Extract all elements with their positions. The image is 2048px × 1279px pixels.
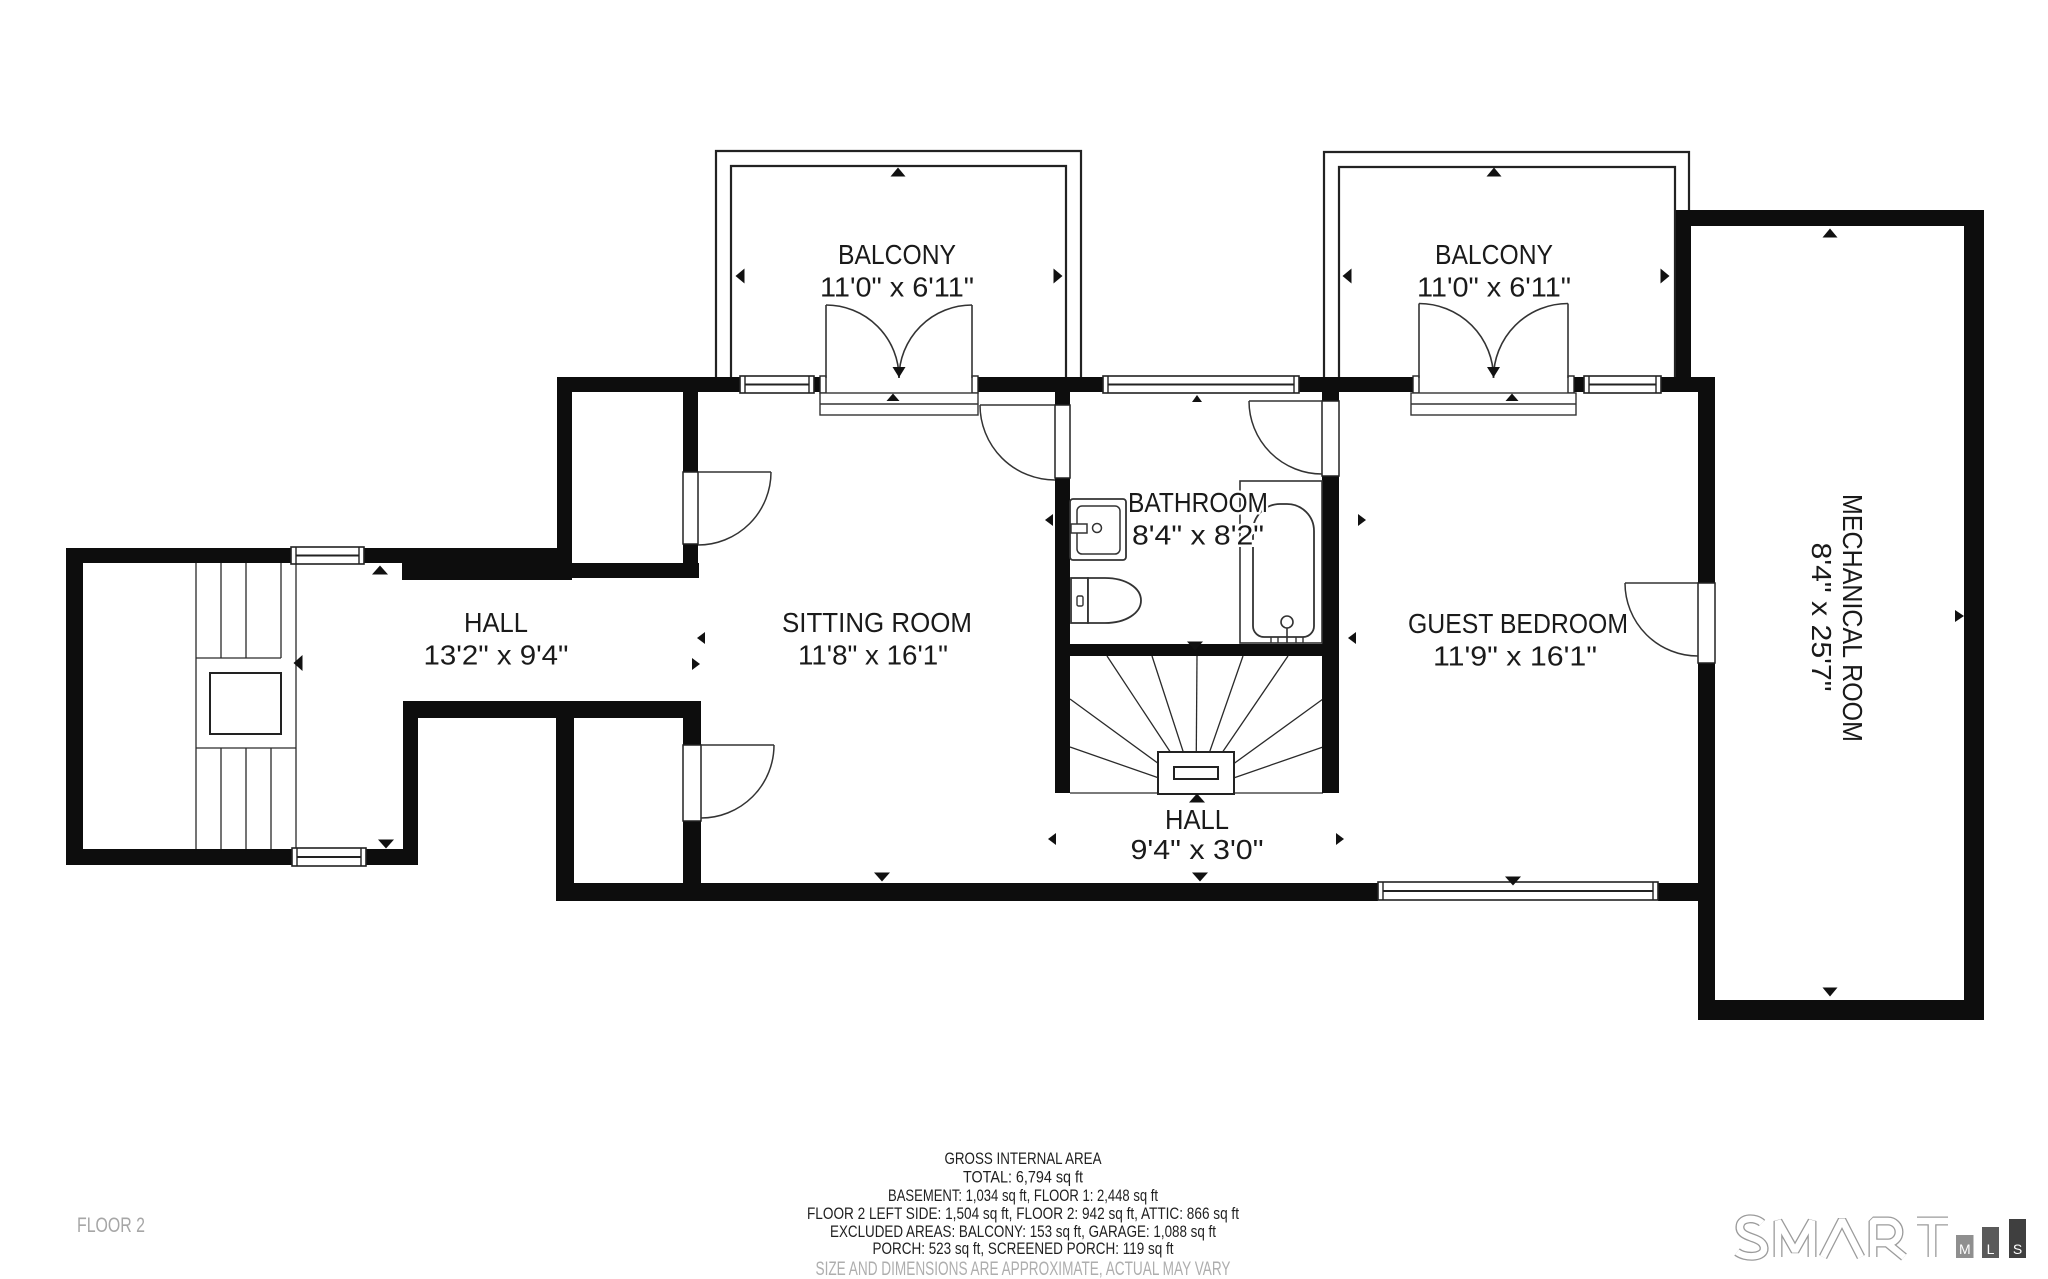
svg-text:GUEST BEDROOM: GUEST BEDROOM <box>1408 608 1628 639</box>
svg-text:BATHROOM: BATHROOM <box>1128 487 1268 518</box>
svg-text:SITTING ROOM: SITTING ROOM <box>782 607 972 638</box>
svg-text:BALCONY: BALCONY <box>1435 239 1553 270</box>
svg-text:L: L <box>1987 1241 1995 1257</box>
svg-text:M: M <box>1959 1241 1971 1257</box>
svg-text:FLOOR 2: FLOOR 2 <box>77 1214 145 1237</box>
svg-text:8'4" x 25'7": 8'4" x 25'7" <box>1806 543 1837 692</box>
svg-text:HALL: HALL <box>1165 804 1229 835</box>
svg-text:GROSS INTERNAL AREA: GROSS INTERNAL AREA <box>945 1149 1103 1168</box>
svg-text:11'8" x 16'1": 11'8" x 16'1" <box>798 640 948 671</box>
svg-text:S: S <box>2013 1241 2022 1257</box>
svg-text:13'2" x 9'4": 13'2" x 9'4" <box>424 640 569 671</box>
svg-text:SIZE AND DIMENSIONS ARE APPROX: SIZE AND DIMENSIONS ARE APPROXIMATE, ACT… <box>816 1259 1231 1279</box>
svg-text:PORCH: 523 sq ft, SCREENED POR: PORCH: 523 sq ft, SCREENED PORCH: 119 sq… <box>873 1239 1174 1258</box>
svg-text:MECHANICAL ROOM: MECHANICAL ROOM <box>1837 494 1868 742</box>
svg-text:8'4" x 8'2": 8'4" x 8'2" <box>1132 520 1264 551</box>
svg-text:11'0" x 6'11": 11'0" x 6'11" <box>1417 272 1571 303</box>
svg-text:HALL: HALL <box>464 607 528 638</box>
svg-text:BASEMENT: 1,034 sq ft, FLOOR 1: BASEMENT: 1,034 sq ft, FLOOR 1: 2,448 sq… <box>888 1186 1158 1205</box>
svg-text:11'9" x 16'1": 11'9" x 16'1" <box>1433 641 1597 672</box>
svg-text:11'0" x 6'11": 11'0" x 6'11" <box>820 272 974 303</box>
svg-text:9'4" x 3'0": 9'4" x 3'0" <box>1131 834 1264 865</box>
svg-text:FLOOR 2 LEFT SIDE: 1,504 sq ft: FLOOR 2 LEFT SIDE: 1,504 sq ft, FLOOR 2:… <box>807 1204 1239 1223</box>
svg-text:BALCONY: BALCONY <box>838 239 956 270</box>
svg-text:TOTAL: 6,794 sq ft: TOTAL: 6,794 sq ft <box>963 1168 1083 1187</box>
